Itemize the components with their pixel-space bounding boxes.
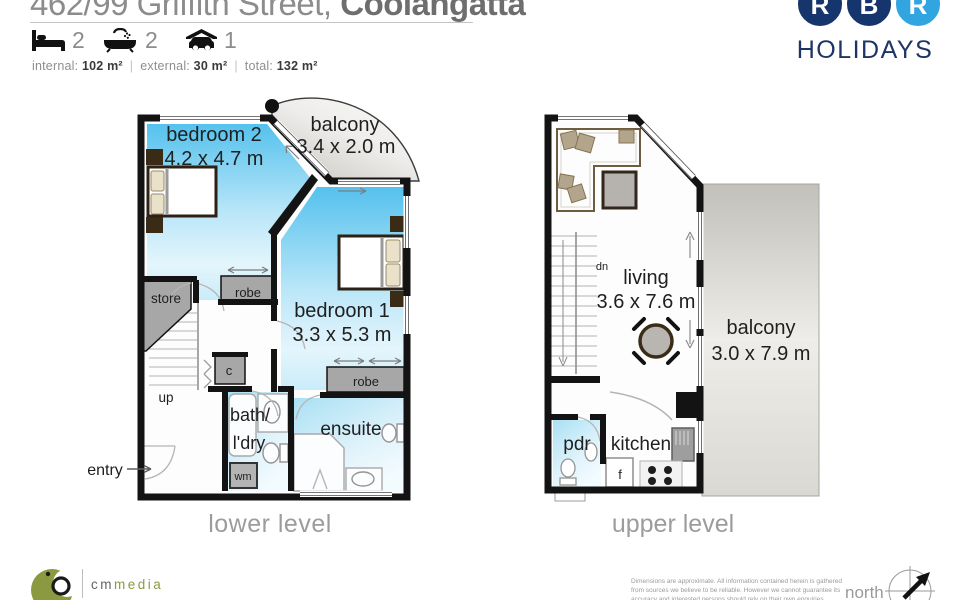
- cmmedia-wordmark: cmmedia: [91, 577, 163, 592]
- bedroom2-label: bedroom 2: [166, 124, 262, 146]
- cmmedia-suffix: media: [114, 577, 163, 592]
- bedroom1-dims: 3.3 x 5.3 m: [293, 324, 392, 346]
- kitchen-label: kitchen: [611, 434, 671, 455]
- lower-balcony-label: balcony: [311, 114, 380, 136]
- disclaimer-line-1: Dimensions are approximate. All informat…: [631, 577, 853, 586]
- lower-level-title: lower level: [208, 510, 332, 538]
- bath-label-1: bath/: [230, 405, 270, 425]
- robe2-label: robe: [235, 285, 261, 300]
- pdr-label: pdr: [563, 434, 591, 455]
- entry-label: entry: [87, 462, 123, 479]
- balcony-post: [265, 99, 279, 113]
- cupboard-label: c: [226, 363, 233, 378]
- disclaimer-line-2: from sources we believe to be reliable. …: [631, 586, 853, 595]
- store-label: store: [151, 291, 181, 306]
- up-label: up: [158, 390, 173, 405]
- cmmedia-divider: [82, 569, 83, 598]
- bedroom2-dims: 4.2 x 4.7 m: [165, 148, 264, 170]
- fridge-label: f: [618, 467, 622, 482]
- living-label: living: [623, 267, 669, 289]
- wm-label: wm: [233, 471, 251, 483]
- robe1-label: robe: [353, 374, 379, 389]
- floor-plans: bedroom 2 4.2 x 4.7 m balcony 3.4 x 2.0 …: [0, 0, 960, 600]
- bath-label-2: l'dry: [233, 433, 265, 453]
- lower-balcony-dims: 3.4 x 2.0 m: [297, 136, 396, 158]
- bedroom1-label: bedroom 1: [294, 300, 390, 322]
- dn-label: dn: [596, 261, 608, 273]
- upper-balcony-area: [702, 184, 819, 496]
- north-label: north: [845, 583, 884, 600]
- upper-floor-plan: living 3.6 x 7.6 m balcony 3.0 x 7.9 m d…: [548, 115, 819, 539]
- disclaimer: Dimensions are approximate. All informat…: [631, 577, 853, 600]
- disclaimer-line-3: accuracy and interested persons should r…: [631, 595, 853, 600]
- upper-balcony-label: balcony: [727, 317, 796, 339]
- ensuite-label: ensuite: [320, 419, 381, 440]
- lower-floor-plan: bedroom 2 4.2 x 4.7 m balcony 3.4 x 2.0 …: [87, 98, 419, 538]
- cmmedia-prefix: cm: [91, 577, 114, 592]
- north-compass-icon: [885, 566, 935, 600]
- cmmedia-logo-mark: [31, 569, 81, 600]
- floorplan-flyer: 462/99 Griffith Street, Coolangatta 2 2 …: [0, 0, 960, 600]
- living-dims: 3.6 x 7.6 m: [597, 291, 696, 313]
- upper-level-title: upper level: [612, 510, 734, 538]
- coffee-table: [603, 172, 636, 208]
- upper-balcony-dims: 3.0 x 7.9 m: [712, 343, 811, 365]
